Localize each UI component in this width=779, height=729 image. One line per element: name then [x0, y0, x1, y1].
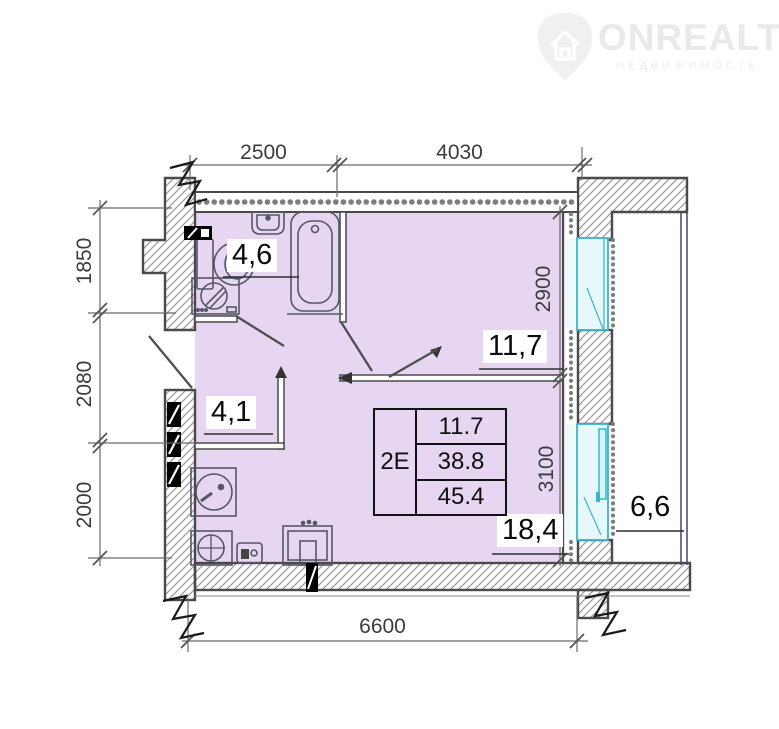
dim-top-left: 2500: [190, 141, 337, 165]
dim-bottom: 6600: [188, 615, 577, 639]
bottom-wall: [195, 563, 690, 590]
window-sill-top: [565, 238, 577, 330]
logo-pin-shape: [538, 13, 592, 81]
balcony-door-leaf: [599, 429, 606, 499]
bathroom-bottom-wall: [195, 316, 237, 322]
dim-right-2: 3100: [535, 414, 559, 524]
hallway-partition-horizontal: [195, 443, 284, 449]
window-upper: [577, 238, 608, 330]
right-wall-pier-bottom: [578, 540, 612, 563]
total-area-value: 45.4: [417, 481, 505, 514]
logo-tagline-text: НЕДВИЖИМОСТЬ: [598, 60, 778, 72]
dim-left-1: 1850: [73, 206, 97, 316]
balcony-railing: [681, 212, 687, 565]
floor-plan: ONREALT НЕДВИЖИМОСТЬ 2500 4030 6600 1850…: [0, 0, 779, 729]
logo-icon: [538, 13, 592, 81]
dim-left-2: 2080: [73, 329, 97, 439]
kitchen-area-label: 18,4: [497, 514, 563, 547]
balcony-area-label: 6,6: [625, 491, 675, 524]
bathroom-right-wall: [340, 212, 346, 322]
window-sill-bottom: [565, 424, 577, 540]
dim-left-3: 2000: [73, 450, 97, 560]
dim-right-1: 2900: [532, 234, 556, 344]
room-area-label: 11,7: [483, 330, 547, 363]
room-partition: [340, 375, 563, 381]
unit-type-label: 2Е: [375, 410, 417, 514]
unit-stats-table: 2Е 11.7 38.8 45.4: [373, 408, 507, 516]
right-wall-pier: [578, 330, 612, 424]
balcony-door-handle: [596, 492, 600, 502]
logo-brand-text: ONREALT: [598, 17, 778, 59]
area-value: 38.8: [417, 445, 505, 480]
hallway-partition-vertical: [278, 377, 284, 449]
top-wall: [195, 192, 578, 212]
dim-top-right: 4030: [337, 141, 582, 165]
entrance-door-swing: [149, 336, 192, 388]
hallway-area-label: 4,1: [206, 396, 256, 429]
living-area-value: 11.7: [417, 410, 505, 445]
top-right-wall: [578, 178, 687, 240]
bathroom-area-label: 4,6: [227, 239, 277, 272]
